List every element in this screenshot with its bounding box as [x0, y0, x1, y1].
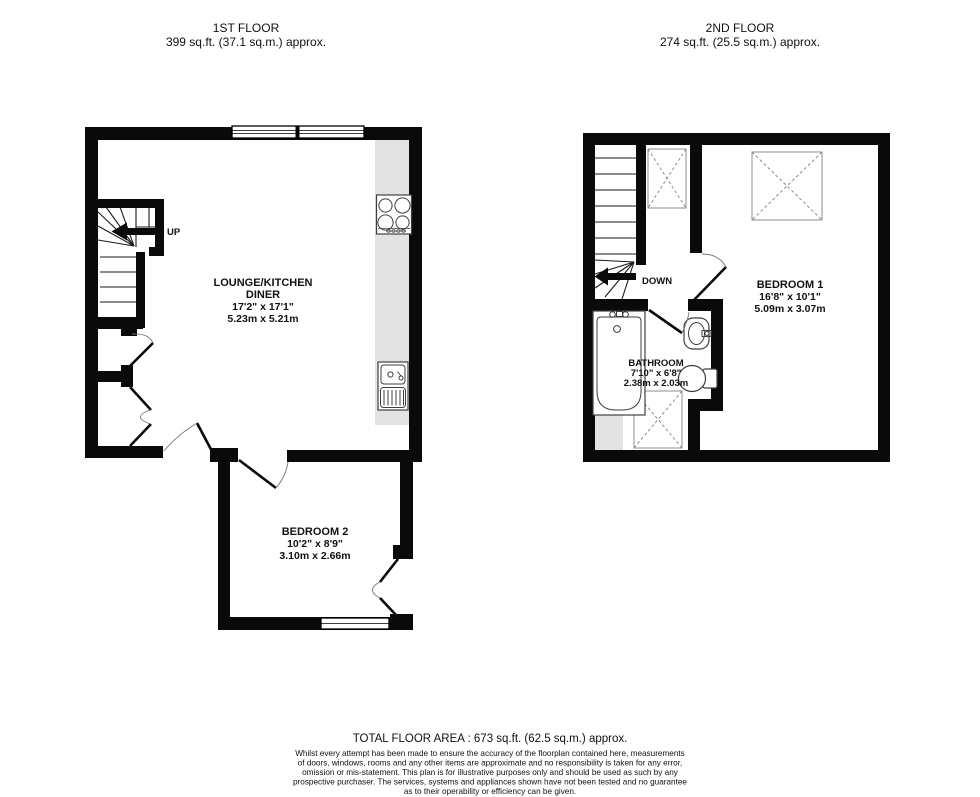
floorplan-drawing: 1ST FLOOR 399 sq.ft. (37.1 sq.m.) approx…: [0, 0, 980, 797]
bedroom1-dims-m: 5.09m x 3.07m: [754, 303, 825, 315]
lounge-dims-ft: 17'2" x 17'1": [232, 301, 294, 313]
floor1-title: 1ST FLOOR: [213, 21, 280, 35]
disclaimer-line: of doors, windows, rooms and any other i…: [298, 759, 683, 768]
bedroom1-skylight: [752, 152, 822, 220]
bedroom2-dims-ft: 10'2" x 8'9": [287, 538, 343, 550]
floor1-area: 399 sq.ft. (37.1 sq.m.) approx.: [166, 35, 326, 49]
floor2-title: 2ND FLOOR: [706, 21, 775, 35]
lounge-label-line1: LOUNGE/KITCHEN: [214, 277, 313, 289]
landing-skylight: [648, 149, 686, 208]
floor1-walls: [85, 127, 422, 630]
total-floor-area: TOTAL FLOOR AREA : 673 sq.ft. (62.5 sq.m…: [353, 733, 628, 745]
disclaimer-line: prospective purchaser. The services, sys…: [293, 778, 687, 787]
basin-icon: [684, 318, 711, 349]
hob-icon: [377, 195, 412, 234]
lounge-window: [232, 126, 364, 138]
sink-icon: [378, 362, 408, 410]
down-arrow-icon: [595, 268, 637, 286]
bathroom-dims-m: 2.38m x 2.03m: [624, 378, 688, 389]
bedroom1-label: BEDROOM 1: [757, 279, 824, 291]
bedroom2-window: [321, 618, 389, 629]
down-label: DOWN: [642, 276, 672, 287]
floor2-area: 274 sq.ft. (25.5 sq.m.) approx.: [660, 35, 820, 49]
disclaimer-line: as to their operability or efficiency ca…: [404, 787, 576, 796]
floor1-doors: [130, 334, 398, 615]
footer: TOTAL FLOOR AREA : 673 sq.ft. (62.5 sq.m…: [293, 733, 687, 796]
up-label: UP: [167, 227, 181, 238]
disclaimer-line: omission or mis-statement. This plan is …: [302, 768, 679, 777]
bedroom2-label: BEDROOM 2: [282, 526, 349, 538]
lounge-dims-m: 5.23m x 5.21m: [227, 313, 298, 325]
floor2-plan: DOWN: [583, 133, 890, 462]
floor1-plan: UP: [85, 126, 422, 630]
bedroom2-dims-m: 3.10m x 2.66m: [279, 550, 350, 562]
bathroom-counter: [595, 414, 623, 450]
floorplan-page: 1ST FLOOR 399 sq.ft. (37.1 sq.m.) approx…: [0, 0, 980, 797]
lounge-label-line2: DINER: [246, 289, 280, 301]
disclaimer-line: Whilst every attempt has been made to en…: [295, 749, 685, 758]
bedroom1-dims-ft: 16'8" x 10'1": [759, 291, 821, 303]
